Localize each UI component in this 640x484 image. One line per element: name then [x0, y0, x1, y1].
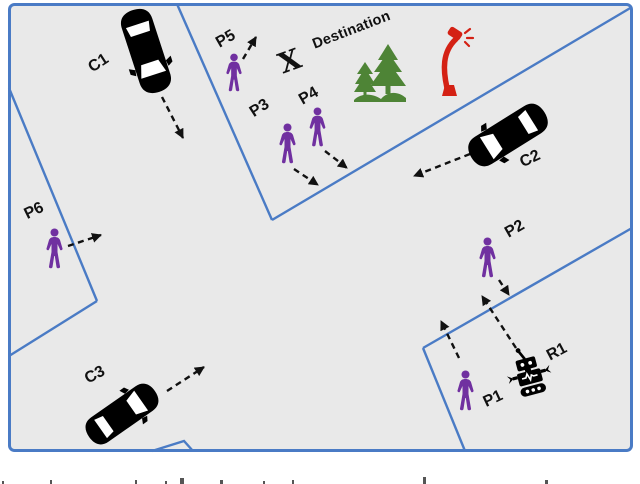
cropped-caption-text: [2, 477, 548, 484]
scene-border: [10, 5, 632, 451]
figure-page: X Destination C1 C2 C3 P1 P2 P3 P4 P5 P6…: [0, 0, 640, 484]
intersection-scenario-figure: X Destination C1 C2 C3 P1 P2 P3 P4 P5 P6…: [0, 0, 640, 484]
